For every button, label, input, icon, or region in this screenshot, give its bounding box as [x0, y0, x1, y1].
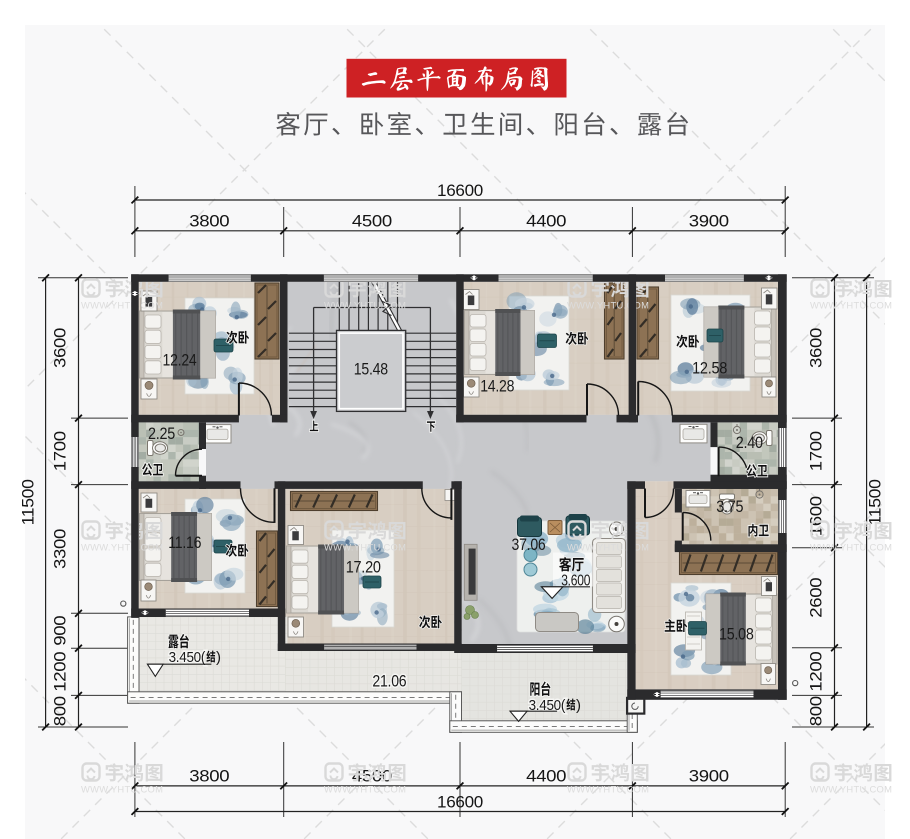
svg-text:3.450(: 3.450( [169, 649, 206, 666]
svg-text:11500: 11500 [867, 479, 885, 525]
svg-text:WWW.YHTU.COM: WWW.YHTU.COM [324, 542, 406, 553]
svg-text:16600: 16600 [437, 182, 483, 200]
svg-text:11500: 11500 [20, 479, 38, 525]
svg-text:1200: 1200 [808, 651, 826, 691]
svg-text:WWW.YHTU.COM: WWW.YHTU.COM [324, 784, 406, 795]
svg-text:2600: 2600 [808, 578, 826, 618]
svg-text:3900: 3900 [689, 768, 729, 786]
svg-text:WWW.YHTU.COM: WWW.YHTU.COM [810, 300, 892, 311]
svg-text:15.48: 15.48 [354, 360, 388, 379]
svg-text:WWW.YHTU.COM: WWW.YHTU.COM [810, 542, 892, 553]
svg-text:WWW.YHTU.COM: WWW.YHTU.COM [81, 300, 163, 311]
svg-text:900: 900 [52, 616, 70, 646]
svg-text:3900: 3900 [689, 213, 729, 231]
svg-text:4400: 4400 [526, 768, 566, 786]
svg-text:800: 800 [808, 696, 826, 726]
svg-text:12.58: 12.58 [692, 358, 727, 377]
svg-text:3300: 3300 [52, 529, 70, 569]
svg-text:1700: 1700 [808, 431, 826, 471]
svg-text:800: 800 [52, 696, 70, 726]
svg-text:15.08: 15.08 [719, 624, 754, 643]
svg-text:3600: 3600 [52, 328, 70, 368]
svg-text:11.16: 11.16 [168, 533, 201, 552]
svg-text:WWW.YHTU.COM: WWW.YHTU.COM [324, 300, 406, 311]
svg-text:WWW.YHTU.COM: WWW.YHTU.COM [567, 784, 649, 795]
svg-text:4400: 4400 [526, 213, 566, 231]
svg-text:16600: 16600 [437, 794, 483, 812]
svg-text:WWW.YHTU.COM: WWW.YHTU.COM [810, 784, 892, 795]
svg-text:WWW.YHTU.COM: WWW.YHTU.COM [567, 542, 649, 553]
svg-text:3.75: 3.75 [716, 497, 743, 516]
svg-text:3800: 3800 [189, 768, 229, 786]
svg-text:WWW.YHTU.COM: WWW.YHTU.COM [81, 542, 163, 553]
svg-text:17.20: 17.20 [346, 557, 381, 576]
svg-text:1200: 1200 [52, 652, 70, 692]
svg-text:2.40: 2.40 [736, 433, 763, 452]
svg-text:WWW.YHTU.COM: WWW.YHTU.COM [567, 300, 649, 311]
svg-text:2.25: 2.25 [148, 424, 175, 443]
svg-text:3600: 3600 [808, 328, 826, 368]
svg-text:4500: 4500 [352, 213, 392, 231]
svg-text:): ) [216, 649, 221, 666]
svg-text:1700: 1700 [52, 431, 70, 471]
svg-text:): ) [576, 697, 581, 714]
svg-text:21.06: 21.06 [372, 672, 406, 691]
svg-text:3800: 3800 [189, 213, 229, 231]
svg-text:37.06: 37.06 [512, 535, 546, 554]
svg-text:WWW.YHTU.COM: WWW.YHTU.COM [81, 784, 163, 795]
svg-text:14.28: 14.28 [480, 377, 514, 396]
svg-text:12.24: 12.24 [163, 351, 197, 370]
